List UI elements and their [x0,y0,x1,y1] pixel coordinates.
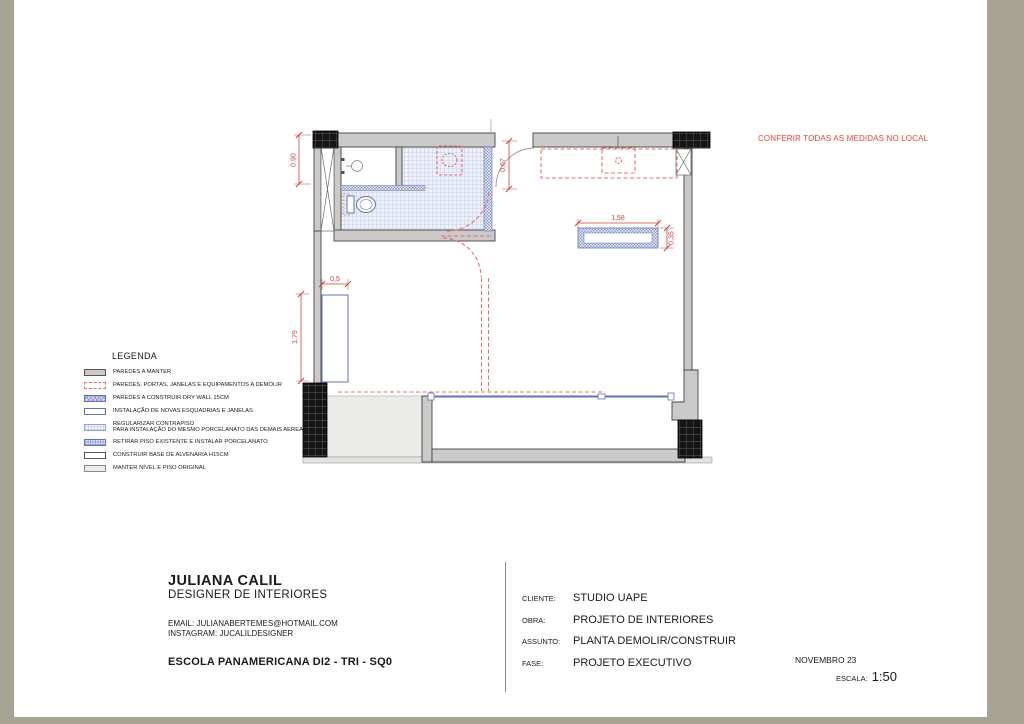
legend-item: MANTER NÍVEL E PISO ORIGINAL [84,462,314,475]
date: NOVEMBRO 23 [795,655,856,665]
titleblock-divider [505,562,506,692]
field-row: FASE: PROJETO EXECUTIVO [522,657,736,679]
dimension-label: 0,90 [291,153,298,167]
column-top-right [673,132,710,148]
legend-swatch-original-floor [84,465,106,472]
legend-swatch-drywall [84,395,106,402]
legend-item: CONSTRUIR BASE DE ALVENARIA H15CM [84,449,314,462]
designer-role: DESIGNER DE INTERIORES [168,589,327,601]
designer-contact: EMAIL: JULIANABERTEMES@HOTMAIL.COM INSTA… [168,619,338,638]
legend-item: REGULARIZAR CONTRAPISO PARA INSTALAÇÃO D… [84,418,314,436]
bottom-wall [432,449,685,462]
legend-item: PAREDES A CONSTRUIR DRY WALL 15CM [84,392,314,405]
email-line: EMAIL: JULIANABERTEMES@HOTMAIL.COM [168,619,338,629]
top-wall-left [314,133,495,147]
legend-swatch-new-frames [84,408,106,415]
project-title: ESCOLA PANAMERICANA DI2 - TRI - SQ0 [168,656,392,668]
scale: ESCALA: 1:50 [836,669,897,684]
designer-name: JULIANA CALIL [168,573,282,589]
legend-item: RETIRAR PISO EXISTENTE E INSTALAR PORCEL… [84,436,314,449]
legend-item: INSTALAÇÃO DE NOVAS ESQUADRIAS E JANELAS [84,405,314,418]
new-window-left [322,295,348,382]
wardrobe-to-demolish [541,149,677,178]
legend-item: PAREDES, PORTAS, JANELAS E EQUIPAMENTOS … [84,379,314,392]
left-outer-wall-top [314,147,321,231]
dimension-label: 0,35 [669,231,676,245]
floor-finishes [303,147,712,463]
new-drywall-bathroom [484,147,492,231]
dimension-label: 0,67 [500,158,507,172]
dimension-label: 0,5 [330,276,340,283]
legend: LEGENDA PAREDES A MANTER PAREDES, PORTAS… [84,351,314,475]
legend-swatch-new-tile [84,439,106,446]
door-swings [491,119,534,187]
equipment-to-demolish [602,148,635,173]
original-floor-area [321,396,422,457]
column-top-left [313,131,338,148]
toilet-tank [347,196,354,213]
titleblock-fields: CLIENTE: STUDIO UAPE OBRA: PROJETO DE IN… [522,592,736,678]
left-wall-lower [314,231,321,383]
legend-swatch-screed [84,424,106,431]
legend-swatch-masonry-base [84,452,106,459]
legend-swatch-demolish [84,382,106,389]
legend-title: LEGENDA [112,351,314,361]
field-row: CLIENTE: STUDIO UAPE [522,592,736,614]
hall-door-demolish-arc [443,238,481,277]
legend-swatch-walls-keep [84,369,106,376]
column-bottom-right [678,420,702,458]
instagram-line: INSTAGRAM: JUCALILDESIGNER [168,629,338,639]
shower-box [341,147,396,187]
dimension-label: 1,58 [611,215,625,222]
new-drywall-shower [341,186,425,191]
bathroom-left-wall [334,147,341,231]
right-wall [684,149,692,370]
top-wall-right [533,133,673,147]
bottom-divider-wall [422,396,432,462]
field-row: OBRA: PROJETO DE INTERIORES [522,614,736,636]
shower-stub-wall [396,147,402,187]
legend-item: PAREDES A MANTER [84,366,314,379]
drawing-sheet: { "page": { "note": "CONFERIR TODAS AS M… [0,0,1024,724]
corner-wall-step [672,370,698,420]
dimension-label: 1,79 [292,330,299,344]
field-row: ASSUNTO: PLANTA DEMOLIR/CONSTRUIR [522,635,736,657]
site-note: CONFERIR TODAS AS MEDIDAS NO LOCAL [758,134,928,143]
toilet-bowl [357,197,376,213]
shower-head [352,161,363,172]
